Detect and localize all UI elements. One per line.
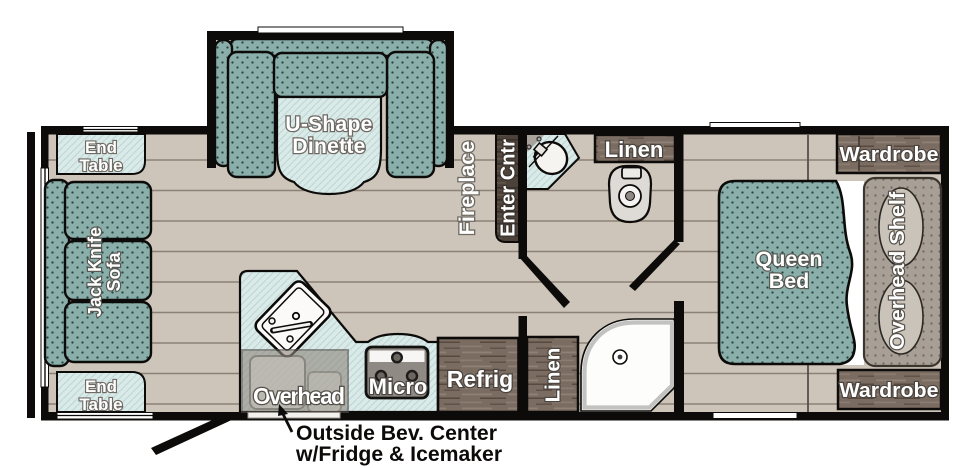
svg-text:Enter Cntr: Enter Cntr [498,139,520,237]
svg-text:Jack Knife: Jack Knife [85,227,105,317]
svg-text:Table: Table [79,156,122,175]
svg-text:Wardrobe: Wardrobe [840,380,939,402]
svg-text:Linen: Linen [542,348,565,403]
svg-text:U-Shape: U-Shape [285,113,372,136]
svg-text:Overhead Shelf: Overhead Shelf [887,192,909,350]
svg-text:Outside Bev. Center: Outside Bev. Center [296,422,497,445]
svg-text:End: End [85,377,117,396]
svg-text:Queen: Queen [756,247,823,271]
svg-text:Linen: Linen [605,137,664,162]
svg-text:Wardrobe: Wardrobe [840,144,939,166]
svg-text:End: End [85,138,117,157]
svg-text:Table: Table [79,395,122,414]
svg-text:Overhead: Overhead [253,383,345,409]
svg-text:Sofa: Sofa [104,252,124,292]
svg-text:Micro: Micro [369,374,428,399]
svg-text:w/Fridge & Icemaker: w/Fridge & Icemaker [295,443,502,466]
svg-text:Dinette: Dinette [292,135,365,158]
svg-text:Refrig: Refrig [447,366,513,392]
svg-text:Bed: Bed [769,269,810,293]
svg-text:Fireplace: Fireplace [455,141,479,235]
